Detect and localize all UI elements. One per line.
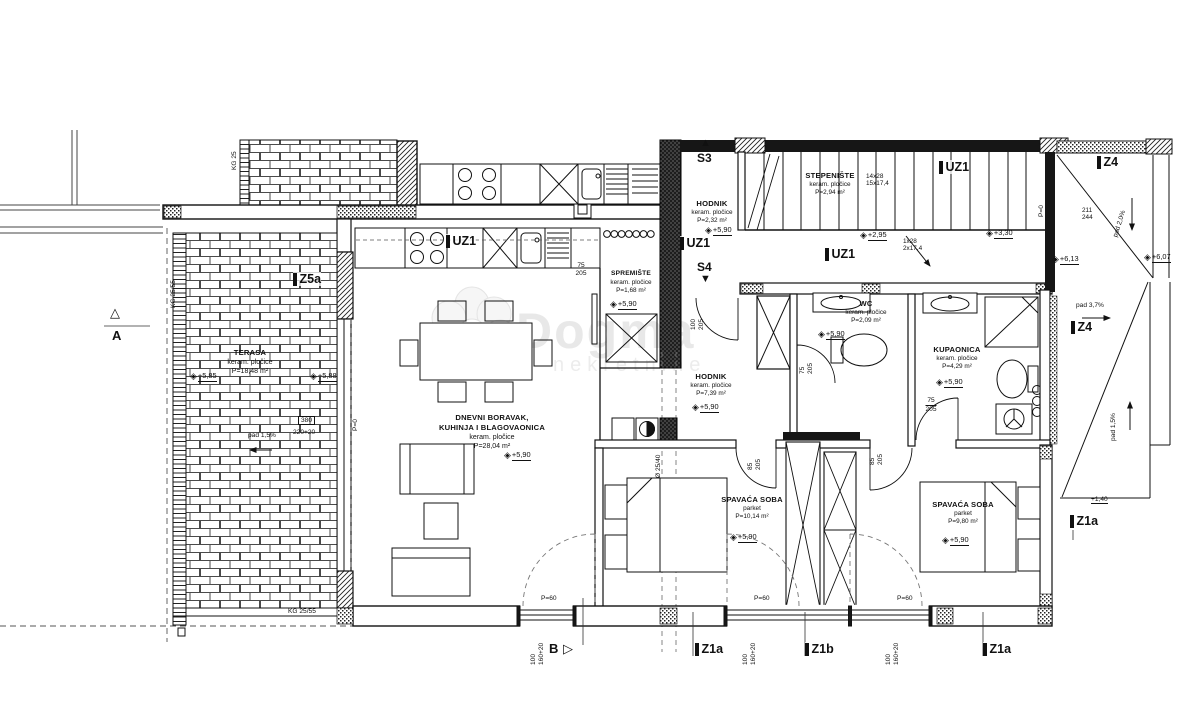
tag-bar-icon — [805, 643, 809, 656]
dim-door-soba1: 85205 — [747, 459, 762, 470]
room-label-hodnik-gornji: HODNIK keram. pločice P=2,32 m² — [691, 199, 732, 226]
section-marker-s3: S3 — [697, 151, 712, 165]
adjacent-structure-lines — [0, 130, 163, 233]
level-diamond-icon: ◈ — [705, 226, 712, 235]
section-marker-a: A — [112, 328, 121, 343]
floorplan-drawing: Dogma nekretnine — [0, 0, 1200, 709]
tag-z1a-right: Z1a — [1070, 514, 1098, 528]
room-label-kupaonica: KUPAONICA keram. pločice P=4,29 m² — [933, 345, 980, 372]
room-label-wc: WC keram. pločice P=2,09 m² — [845, 299, 886, 326]
section-marker-b: B — [549, 641, 558, 656]
room-label-spavaca-2: SPAVAĆA SOBA parket P=9,80 m² — [932, 500, 994, 527]
dim-terrace-height: 220+20 — [293, 429, 315, 438]
level-diamond-icon: ◈ — [1052, 255, 1059, 264]
core-wall — [660, 140, 681, 368]
bedroom2-furniture — [920, 482, 1040, 572]
room-label-stepeniste: STEPENIŠTE keram. pločice P=2,94 m² — [805, 171, 854, 198]
level-diamond-icon: ◈ — [818, 330, 825, 339]
dim-door-s4: 100205 — [690, 319, 705, 330]
level-marker-stair-side: ◈ +3,30 — [986, 228, 1013, 239]
room-label-dnevni: DNEVNI BORAVAK, KUHINJA I BLAGOVAONICA k… — [439, 413, 545, 451]
dim-window-2: 100160+20 — [742, 643, 757, 665]
room-label-hodnik: HODNIK keram. pločice P=7,39 m² — [690, 372, 731, 399]
tag-bar-icon — [680, 237, 684, 250]
stair-risers-lower: 1x28 2x17,4 — [903, 238, 922, 253]
dim-p0-west: P=0 — [352, 419, 361, 431]
tag-z1a-bottom-right: Z1a — [983, 642, 1011, 656]
level-marker-spremiste: ◈ +5,90 — [610, 299, 637, 310]
level-diamond-icon: ◈ — [942, 536, 949, 545]
dim-door-spremiste: 75205 — [575, 262, 586, 277]
section-s3-triangle-icon: ▲ — [700, 138, 711, 149]
dim-column: Ø 25/40 — [655, 455, 664, 478]
section-b-triangle-icon: ▷ — [563, 642, 573, 655]
level-diamond-icon: ◈ — [190, 372, 197, 381]
tag-z1a-bottom-left: Z1a — [695, 642, 723, 656]
tag-z1b-bottom: Z1b — [805, 642, 834, 656]
dim-kg2555-left: KG 25/55 — [170, 280, 179, 308]
dim-window-1: 100160+20 — [530, 643, 545, 665]
dim-terrace-width: 380 — [298, 417, 315, 426]
level-marker-wc: ◈ +5,90 — [818, 329, 845, 340]
level-diamond-icon: ◈ — [504, 451, 511, 460]
tag-z4-top: Z4 — [1097, 155, 1118, 169]
tag-z4-right: Z4 — [1071, 320, 1092, 334]
level-diamond-icon: ◈ — [730, 533, 737, 542]
dim-kg25-top: KG 25 — [231, 151, 240, 170]
level-diamond-icon: ◈ — [986, 229, 993, 238]
tag-bar-icon — [825, 248, 829, 261]
tag-uz1-top-right: UZ1 — [939, 160, 969, 174]
level-marker-hodnik: ◈ +5,90 — [692, 402, 719, 413]
tag-bar-icon — [695, 643, 699, 656]
wardrobes — [786, 442, 856, 608]
level-diamond-icon: ◈ — [1144, 253, 1151, 262]
level-marker-roof-b: ◈ +6,07 — [1144, 252, 1171, 263]
level-marker-terasa-right: ◈ +5,88 — [310, 371, 337, 382]
level-diamond-icon: ◈ — [860, 231, 867, 240]
dim-roof-size: 211244 — [1082, 207, 1093, 222]
room-label-terasa: TERASA keram. pločice P=18,48 m² — [227, 348, 272, 376]
level-marker-kupaonica: ◈ +5,90 — [936, 377, 963, 388]
tag-bar-icon — [293, 273, 297, 286]
tag-z5a: Z5a — [293, 272, 321, 286]
tag-uz1-stairs: UZ1 — [825, 247, 855, 261]
tag-bar-icon — [1071, 321, 1075, 334]
room-terasa-name: TERASA — [227, 348, 272, 358]
tag-bar-icon — [939, 161, 943, 174]
level-marker-spavaca-2: ◈ +5,90 — [942, 535, 969, 546]
tag-uz1-hodnik: UZ1 — [680, 236, 710, 250]
tag-uz1-kitchen: UZ1 — [446, 234, 476, 248]
slope-label-right-b: pad 1,5% — [1110, 413, 1119, 441]
tag-bar-icon — [983, 643, 987, 656]
tag-bar-icon — [1070, 515, 1074, 528]
level-label-terrace-low: +1,40 — [1091, 496, 1108, 505]
section-s4-triangle-icon: ▼ — [700, 274, 711, 285]
level-diamond-icon: ◈ — [936, 378, 943, 387]
level-marker-terasa-left: ◈ +5,85 — [190, 371, 217, 382]
kitchen-counter — [355, 228, 600, 268]
upper-terrace-paving — [240, 140, 417, 212]
room-label-spremiste: SPREMIŠTE keram. pločice P=1,68 m² — [610, 270, 651, 295]
room-terasa-area: P=18,48 m² — [227, 367, 272, 376]
dim-parapet-3: P=60 — [897, 595, 913, 604]
dim-window-3: 100160+20 — [885, 643, 900, 665]
level-marker-roof-a: ◈ +6,13 — [1052, 254, 1079, 265]
tag-bar-icon — [446, 235, 450, 248]
slope-label-terasa: pad 1,5% — [248, 432, 276, 441]
dim-door-soba2: 85205 — [869, 454, 884, 465]
dim-parapet-1: P=60 — [541, 595, 557, 604]
stair-risers-upper: 14x28 15x17,4 — [866, 173, 889, 188]
level-diamond-icon: ◈ — [310, 372, 317, 381]
tag-bar-icon — [1097, 156, 1101, 169]
svg-text:nekretnine: nekretnine — [553, 354, 706, 376]
level-marker-spavaca-1: ◈ +5,90 — [730, 532, 757, 543]
level-marker-dnevni: ◈ +5,90 — [504, 450, 531, 461]
dim-kg2555-bottom: KG 25/55 — [288, 608, 316, 617]
room-label-spavaca-1: SPAVAĆA SOBA parket P=10,14 m² — [721, 495, 783, 522]
slope-label-right-a: pad 3,7% — [1076, 302, 1104, 311]
section-a-triangle-icon: △ — [110, 306, 120, 319]
dim-parapet-2: P=60 — [754, 595, 770, 604]
floor-plan-canvas: Dogma nekretnine — [0, 0, 1200, 709]
section-marker-s4: S4 — [697, 260, 712, 274]
dim-p0-right: P=0 — [1038, 205, 1047, 217]
level-diamond-icon: ◈ — [692, 403, 699, 412]
dim-door-kupaonica: 75205 — [925, 397, 936, 413]
dim-door-wc: 75205 — [799, 363, 814, 374]
roof-slope-right — [1060, 282, 1170, 498]
neighbour-kitchen-counter — [420, 164, 660, 204]
level-marker-stair-mid: ◈ +2,95 — [860, 230, 887, 241]
room-terasa-finish: keram. pločice — [227, 358, 272, 367]
west-wall-window — [337, 219, 353, 608]
level-diamond-icon: ◈ — [610, 300, 617, 309]
level-marker-hodnik-gornji: ◈ +5,90 — [705, 225, 732, 236]
bedroom1-furniture — [605, 478, 727, 572]
